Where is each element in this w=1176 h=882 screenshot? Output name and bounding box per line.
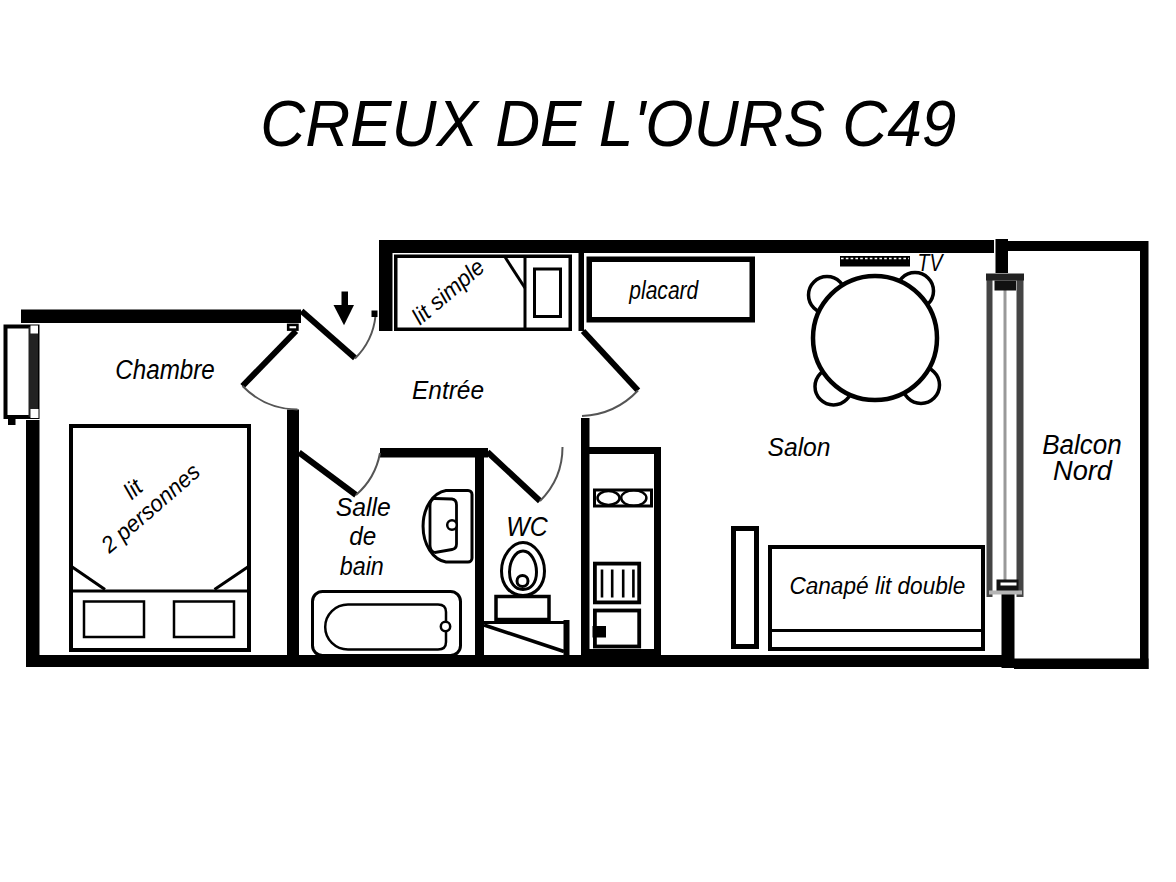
svg-text:Salle: Salle xyxy=(336,492,391,522)
svg-text:Canapé lit double: Canapé lit double xyxy=(789,573,965,599)
svg-text:Chambre: Chambre xyxy=(115,355,215,385)
svg-text:Salon: Salon xyxy=(768,432,831,462)
svg-text:de: de xyxy=(349,521,376,551)
svg-text:placard: placard xyxy=(628,276,699,304)
svg-text:Nord: Nord xyxy=(1053,456,1113,486)
svg-text:WC: WC xyxy=(506,511,548,542)
svg-text:CREUX DE L'OURS C49: CREUX DE L'OURS C49 xyxy=(260,87,956,160)
svg-text:Entrée: Entrée xyxy=(412,375,484,405)
svg-text:bain: bain xyxy=(340,551,384,581)
svg-text:TV: TV xyxy=(918,249,945,276)
